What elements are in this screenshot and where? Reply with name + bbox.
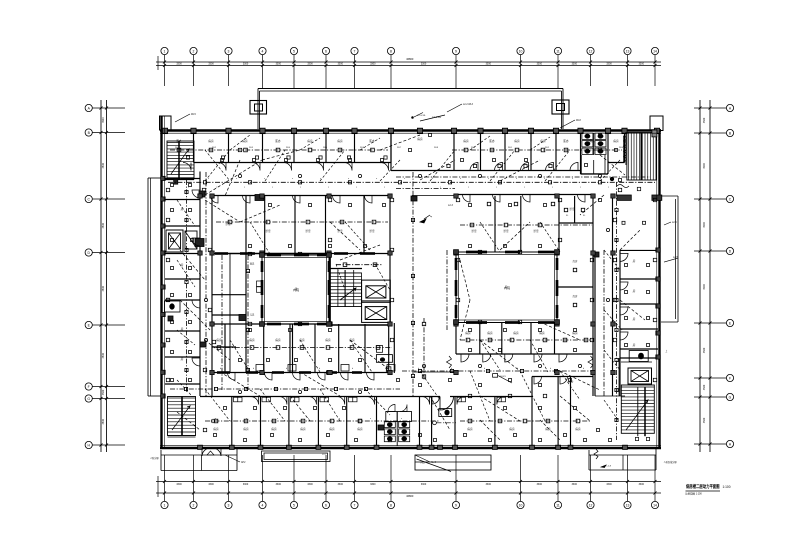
svg-text:a: a bbox=[376, 178, 378, 180]
svg-text:b: b bbox=[517, 368, 519, 370]
svg-text:8: 8 bbox=[390, 50, 392, 54]
svg-text:WL2: WL2 bbox=[212, 147, 217, 149]
svg-text:10: 10 bbox=[519, 50, 523, 54]
svg-text:2: 2 bbox=[440, 187, 441, 189]
svg-text:1:100: 1:100 bbox=[723, 485, 731, 489]
svg-text:n: n bbox=[370, 418, 371, 420]
svg-text:2: 2 bbox=[608, 187, 609, 189]
svg-text:病房: 病房 bbox=[213, 427, 219, 431]
svg-text:4: 4 bbox=[262, 50, 264, 54]
svg-text:7: 7 bbox=[354, 50, 356, 54]
svg-text:3300: 3300 bbox=[572, 483, 578, 486]
svg-text:E: E bbox=[729, 322, 732, 326]
svg-text:诊室: 诊室 bbox=[369, 229, 375, 233]
svg-text:L2-3: L2-3 bbox=[448, 204, 453, 207]
svg-text:2: 2 bbox=[496, 187, 497, 189]
svg-text:1: 1 bbox=[164, 504, 166, 508]
svg-text:6: 6 bbox=[325, 504, 327, 508]
svg-text:病房: 病房 bbox=[467, 427, 473, 431]
svg-text:B: B bbox=[88, 131, 91, 135]
svg-text:比例见图 1:100: 比例见图 1:100 bbox=[686, 491, 703, 495]
svg-text:病房: 病房 bbox=[216, 338, 222, 342]
svg-text:F: F bbox=[729, 377, 731, 381]
svg-text:库房: 库房 bbox=[573, 259, 578, 263]
svg-text:内院: 内院 bbox=[293, 287, 299, 292]
svg-text:2: 2 bbox=[580, 187, 581, 189]
svg-text:FL: FL bbox=[566, 215, 569, 217]
svg-text:污洗: 污洗 bbox=[250, 313, 255, 317]
svg-text:3300: 3300 bbox=[606, 63, 612, 66]
svg-text:病房: 病房 bbox=[243, 427, 249, 431]
svg-text:3300: 3300 bbox=[421, 63, 427, 66]
svg-text:2: 2 bbox=[216, 187, 217, 189]
svg-text:3300: 3300 bbox=[606, 483, 612, 486]
svg-text:3300: 3300 bbox=[208, 483, 214, 486]
svg-text:12: 12 bbox=[589, 50, 593, 54]
svg-text:病房: 病房 bbox=[417, 137, 423, 141]
svg-text:2: 2 bbox=[193, 50, 195, 54]
svg-text:n: n bbox=[401, 418, 402, 420]
svg-text:3300: 3300 bbox=[486, 63, 492, 66]
svg-text:病房: 病房 bbox=[208, 139, 214, 143]
svg-text:7: 7 bbox=[354, 504, 356, 508]
svg-text:病房: 病房 bbox=[514, 139, 520, 143]
svg-text:4500: 4500 bbox=[703, 284, 706, 290]
svg-text:46800: 46800 bbox=[406, 494, 414, 498]
svg-text:病房: 病房 bbox=[589, 139, 595, 143]
svg-text:WL5: WL5 bbox=[191, 114, 196, 116]
svg-text:n: n bbox=[308, 418, 309, 420]
svg-text:病房: 病房 bbox=[249, 338, 255, 342]
svg-text:WL8: WL8 bbox=[434, 147, 439, 149]
svg-text:11: 11 bbox=[556, 50, 560, 54]
svg-text:3300: 3300 bbox=[537, 483, 543, 486]
svg-text:病房: 病房 bbox=[613, 139, 619, 143]
svg-text:病房: 病房 bbox=[545, 427, 551, 431]
svg-text:3300: 3300 bbox=[639, 483, 645, 486]
svg-text:病房: 病房 bbox=[487, 331, 493, 335]
svg-text:11: 11 bbox=[556, 504, 560, 508]
svg-text:3300: 3300 bbox=[338, 483, 344, 486]
svg-text:a: a bbox=[572, 178, 574, 180]
svg-text:4500: 4500 bbox=[703, 163, 706, 169]
svg-text:病房楼二层动力平面图: 病房楼二层动力平面图 bbox=[686, 483, 720, 490]
svg-text:L2-G WL: L2-G WL bbox=[417, 115, 427, 117]
svg-text:b: b bbox=[319, 368, 321, 370]
svg-text:9: 9 bbox=[455, 50, 457, 54]
svg-text:房: 房 bbox=[181, 263, 184, 267]
svg-text:病房: 病房 bbox=[337, 139, 343, 143]
svg-text:4500: 4500 bbox=[102, 389, 105, 395]
svg-text:房: 房 bbox=[633, 317, 636, 321]
svg-text:3300: 3300 bbox=[307, 63, 313, 66]
svg-text:2: 2 bbox=[356, 187, 357, 189]
svg-text:a: a bbox=[432, 178, 434, 180]
svg-text:3: 3 bbox=[228, 504, 230, 508]
svg-text:WL7: WL7 bbox=[397, 147, 402, 149]
svg-text:12: 12 bbox=[589, 504, 593, 508]
svg-text:D: D bbox=[729, 250, 732, 254]
svg-text:E: E bbox=[88, 324, 91, 328]
svg-text:a: a bbox=[516, 178, 518, 180]
svg-text:3300: 3300 bbox=[176, 63, 182, 66]
svg-text:3300: 3300 bbox=[639, 63, 645, 66]
svg-text:3300: 3300 bbox=[537, 63, 543, 66]
svg-text:诊室: 诊室 bbox=[503, 229, 509, 233]
svg-text:病房: 病房 bbox=[463, 139, 469, 143]
svg-text:诊室: 诊室 bbox=[305, 229, 311, 233]
svg-text:a: a bbox=[460, 178, 462, 180]
svg-text:诊室: 诊室 bbox=[337, 229, 343, 233]
svg-text:2: 2 bbox=[188, 187, 189, 189]
svg-text:a: a bbox=[404, 178, 406, 180]
svg-text:2: 2 bbox=[300, 187, 301, 189]
svg-text:库房: 库房 bbox=[573, 294, 578, 298]
svg-text:3300: 3300 bbox=[243, 63, 249, 66]
svg-text:上: 上 bbox=[665, 349, 668, 353]
svg-text:3300: 3300 bbox=[486, 483, 492, 486]
svg-text:AP2: AP2 bbox=[241, 461, 246, 464]
svg-text:AL-3: AL-3 bbox=[431, 461, 437, 464]
svg-text:诊室: 诊室 bbox=[533, 229, 539, 233]
svg-text:2: 2 bbox=[193, 504, 195, 508]
svg-text:3300: 3300 bbox=[370, 63, 376, 66]
svg-text:入口: 入口 bbox=[420, 460, 425, 464]
svg-text:病房: 病房 bbox=[275, 338, 281, 342]
svg-text:4500: 4500 bbox=[102, 352, 105, 358]
svg-text:13: 13 bbox=[626, 504, 630, 508]
svg-text:3300: 3300 bbox=[421, 483, 427, 486]
svg-text:n: n bbox=[277, 418, 278, 420]
svg-text:WL3: WL3 bbox=[249, 147, 254, 149]
svg-text:WL8: WL8 bbox=[576, 120, 581, 122]
svg-text:b: b bbox=[583, 368, 585, 370]
svg-text:房: 房 bbox=[181, 327, 184, 331]
svg-text:3300: 3300 bbox=[572, 63, 578, 66]
svg-text:4500: 4500 bbox=[703, 347, 706, 353]
svg-text:医办: 医办 bbox=[176, 139, 182, 143]
svg-text:a: a bbox=[208, 178, 210, 180]
svg-text:b: b bbox=[352, 368, 354, 370]
svg-text:病房: 病房 bbox=[509, 427, 515, 431]
svg-text:8: 8 bbox=[390, 504, 392, 508]
svg-text:医办: 医办 bbox=[275, 139, 281, 143]
svg-text:病房: 病房 bbox=[300, 427, 306, 431]
svg-text:3: 3 bbox=[228, 50, 230, 54]
svg-text:房: 房 bbox=[181, 357, 184, 361]
svg-text:3300: 3300 bbox=[338, 63, 344, 66]
svg-text:5: 5 bbox=[293, 50, 295, 54]
svg-text:b: b bbox=[253, 368, 255, 370]
svg-text:4500: 4500 bbox=[102, 418, 105, 424]
svg-text:医办: 医办 bbox=[489, 139, 495, 143]
svg-text:4500: 4500 bbox=[102, 117, 105, 123]
svg-text:H: H bbox=[729, 443, 732, 447]
svg-text:4500: 4500 bbox=[703, 117, 706, 123]
svg-text:2: 2 bbox=[272, 187, 273, 189]
svg-text:5: 5 bbox=[293, 504, 295, 508]
svg-text:诊室: 诊室 bbox=[569, 207, 575, 211]
svg-text:3300: 3300 bbox=[276, 483, 282, 486]
svg-text:14: 14 bbox=[653, 504, 657, 508]
svg-text:kp: kp bbox=[430, 216, 433, 218]
svg-text:n: n bbox=[246, 418, 247, 420]
svg-text:诊室: 诊室 bbox=[225, 222, 231, 226]
svg-text:B: B bbox=[729, 132, 732, 136]
svg-text:WL1: WL1 bbox=[508, 147, 513, 149]
svg-text:病房: 病房 bbox=[329, 427, 335, 431]
svg-text:a: a bbox=[488, 178, 490, 180]
svg-text:L2-2 WL3: L2-2 WL3 bbox=[463, 104, 474, 106]
svg-text:2: 2 bbox=[244, 187, 245, 189]
svg-text:2: 2 bbox=[552, 187, 553, 189]
svg-text:医办: 医办 bbox=[563, 139, 569, 143]
svg-text:人防区域分界: 人防区域分界 bbox=[664, 460, 678, 464]
svg-text:WL5: WL5 bbox=[323, 147, 328, 149]
svg-text:G: G bbox=[87, 397, 90, 401]
svg-text:4500: 4500 bbox=[102, 162, 105, 168]
svg-text:房: 房 bbox=[633, 289, 636, 293]
svg-text:病房: 病房 bbox=[575, 427, 581, 431]
svg-text:46800: 46800 bbox=[406, 57, 414, 61]
svg-text:2: 2 bbox=[524, 187, 525, 189]
svg-text:FL: FL bbox=[583, 215, 586, 217]
svg-text:L2-5: L2-5 bbox=[672, 222, 677, 224]
svg-text:3300: 3300 bbox=[370, 483, 376, 486]
svg-text:A: A bbox=[88, 107, 91, 111]
svg-text:10: 10 bbox=[519, 504, 523, 508]
svg-text:G: G bbox=[729, 396, 732, 400]
svg-text:b: b bbox=[484, 368, 486, 370]
svg-text:4500: 4500 bbox=[703, 222, 706, 228]
svg-text:病房: 病房 bbox=[271, 427, 277, 431]
svg-text:F: F bbox=[88, 385, 90, 389]
svg-text:13: 13 bbox=[626, 50, 630, 54]
svg-text:14: 14 bbox=[653, 50, 657, 54]
svg-text:病房: 病房 bbox=[325, 338, 331, 342]
svg-text:2: 2 bbox=[384, 187, 385, 189]
svg-text:C: C bbox=[729, 198, 732, 202]
svg-text:4500: 4500 bbox=[102, 285, 105, 291]
svg-text:4500: 4500 bbox=[703, 384, 706, 390]
svg-text:诊室: 诊室 bbox=[265, 229, 271, 233]
svg-text:病房: 病房 bbox=[513, 331, 519, 335]
svg-text:病房: 病房 bbox=[357, 427, 363, 431]
svg-text:A: A bbox=[729, 107, 732, 111]
svg-text:4: 4 bbox=[262, 504, 264, 508]
svg-text:4500: 4500 bbox=[703, 417, 706, 423]
svg-text:WL2: WL2 bbox=[545, 147, 550, 149]
svg-text:3300: 3300 bbox=[276, 63, 282, 66]
svg-text:a: a bbox=[236, 178, 238, 180]
svg-text:房: 房 bbox=[633, 259, 636, 263]
svg-text:2: 2 bbox=[468, 187, 469, 189]
svg-text:诊室: 诊室 bbox=[471, 229, 477, 233]
svg-text:3300: 3300 bbox=[243, 483, 249, 486]
svg-text:4500: 4500 bbox=[102, 222, 105, 228]
svg-text:病房: 病房 bbox=[242, 139, 248, 143]
svg-text:3300: 3300 bbox=[208, 63, 214, 66]
svg-text:n: n bbox=[215, 418, 216, 420]
svg-text:L2-7: L2-7 bbox=[322, 454, 327, 456]
svg-text:内院: 内院 bbox=[504, 285, 510, 290]
svg-text:房: 房 bbox=[633, 343, 636, 347]
svg-text:6: 6 bbox=[325, 50, 327, 54]
svg-text:人防分界: 人防分界 bbox=[150, 456, 160, 460]
svg-text:H: H bbox=[87, 444, 90, 448]
svg-text:a: a bbox=[292, 178, 294, 180]
svg-text:2: 2 bbox=[328, 187, 329, 189]
svg-text:b: b bbox=[550, 368, 552, 370]
svg-text:WL4: WL4 bbox=[286, 147, 291, 149]
svg-text:9: 9 bbox=[455, 504, 457, 508]
svg-text:3300: 3300 bbox=[176, 483, 182, 486]
svg-text:L2-9: L2-9 bbox=[607, 466, 612, 468]
svg-text:3300: 3300 bbox=[307, 483, 313, 486]
svg-text:a: a bbox=[348, 178, 350, 180]
svg-text:2: 2 bbox=[412, 187, 413, 189]
svg-text:盥洗: 盥洗 bbox=[250, 262, 255, 266]
svg-text:D: D bbox=[87, 251, 90, 255]
svg-text:1: 1 bbox=[164, 50, 166, 54]
svg-text:C: C bbox=[87, 198, 90, 202]
